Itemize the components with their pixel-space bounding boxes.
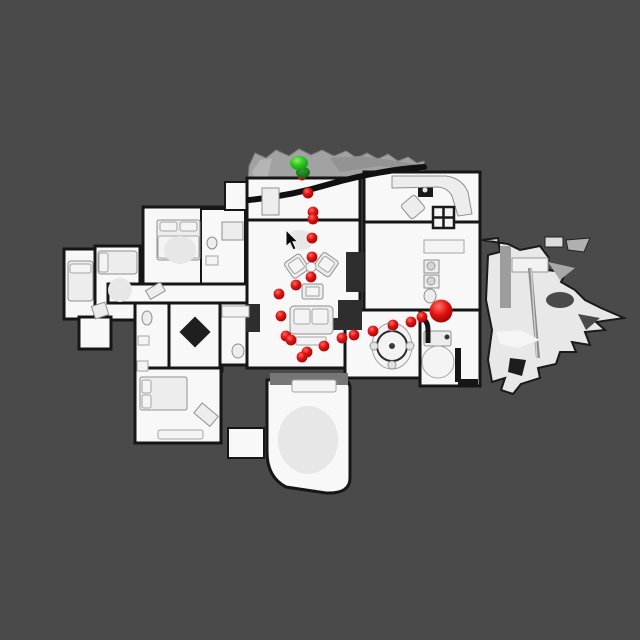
room-closet-top [225,182,247,210]
waypoint-marker [337,333,348,344]
waypoint-marker [306,272,317,283]
waypoint-marker [417,312,428,323]
room-bottom-stub [228,428,264,458]
waypoint-marker [406,317,417,328]
map-viewport[interactable] [0,0,640,640]
fireplace-dot [423,188,428,193]
waypoint-marker [291,280,302,291]
waypoint-marker [303,188,314,199]
stair-shadow-1 [346,252,364,292]
waypoint-marker [297,352,308,363]
waypoint-marker [286,335,297,346]
waypoint-marker [276,311,287,322]
waypoint-marker [349,330,360,341]
waypoint-marker [319,341,330,352]
waypoint-marker [368,326,379,337]
utility-rooms [364,222,480,314]
goal-marker [430,300,453,323]
waypoint-marker [388,320,399,331]
waypoint-marker [307,252,318,263]
floorplan-canvas[interactable] [0,0,640,640]
waypoint-marker [308,214,319,225]
waypoint-marker [307,233,318,244]
room-master-bath [201,209,245,285]
waypoint-marker [274,289,285,300]
house-scan [64,149,624,493]
start-marker [290,156,308,170]
room-left-stub [79,317,111,349]
patio-region [482,237,624,394]
